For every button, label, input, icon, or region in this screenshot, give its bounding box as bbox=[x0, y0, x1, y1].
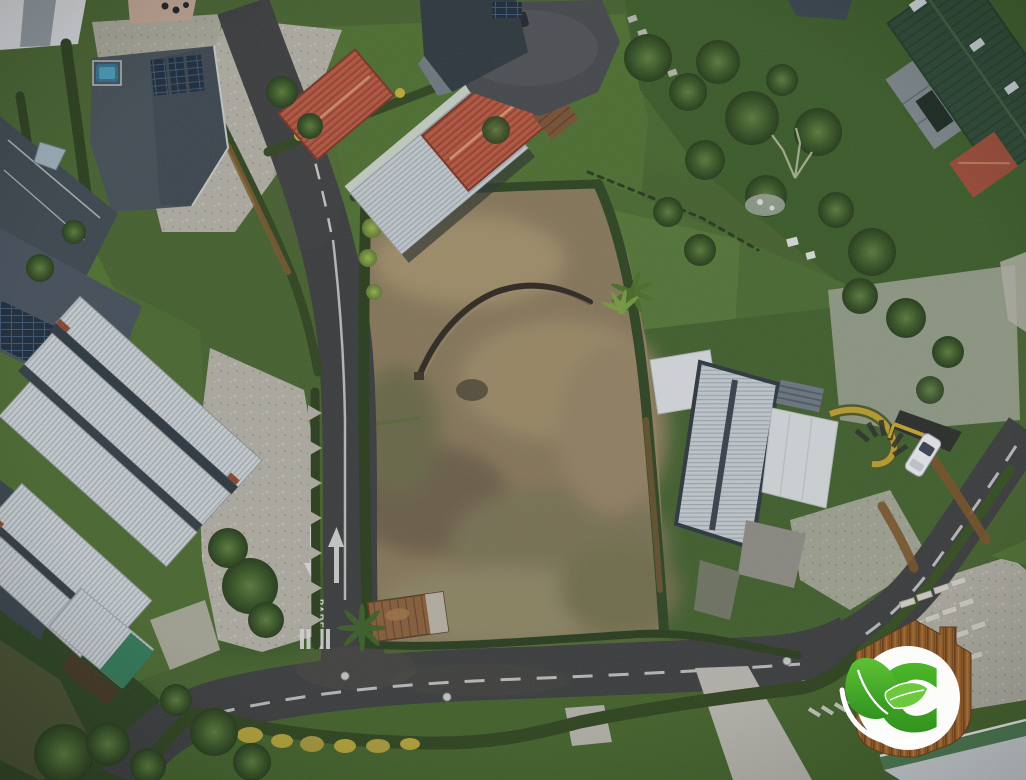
aerial-photo: PARE bbox=[0, 0, 1026, 780]
aerial-photo-canvas: PARE bbox=[0, 0, 1026, 780]
